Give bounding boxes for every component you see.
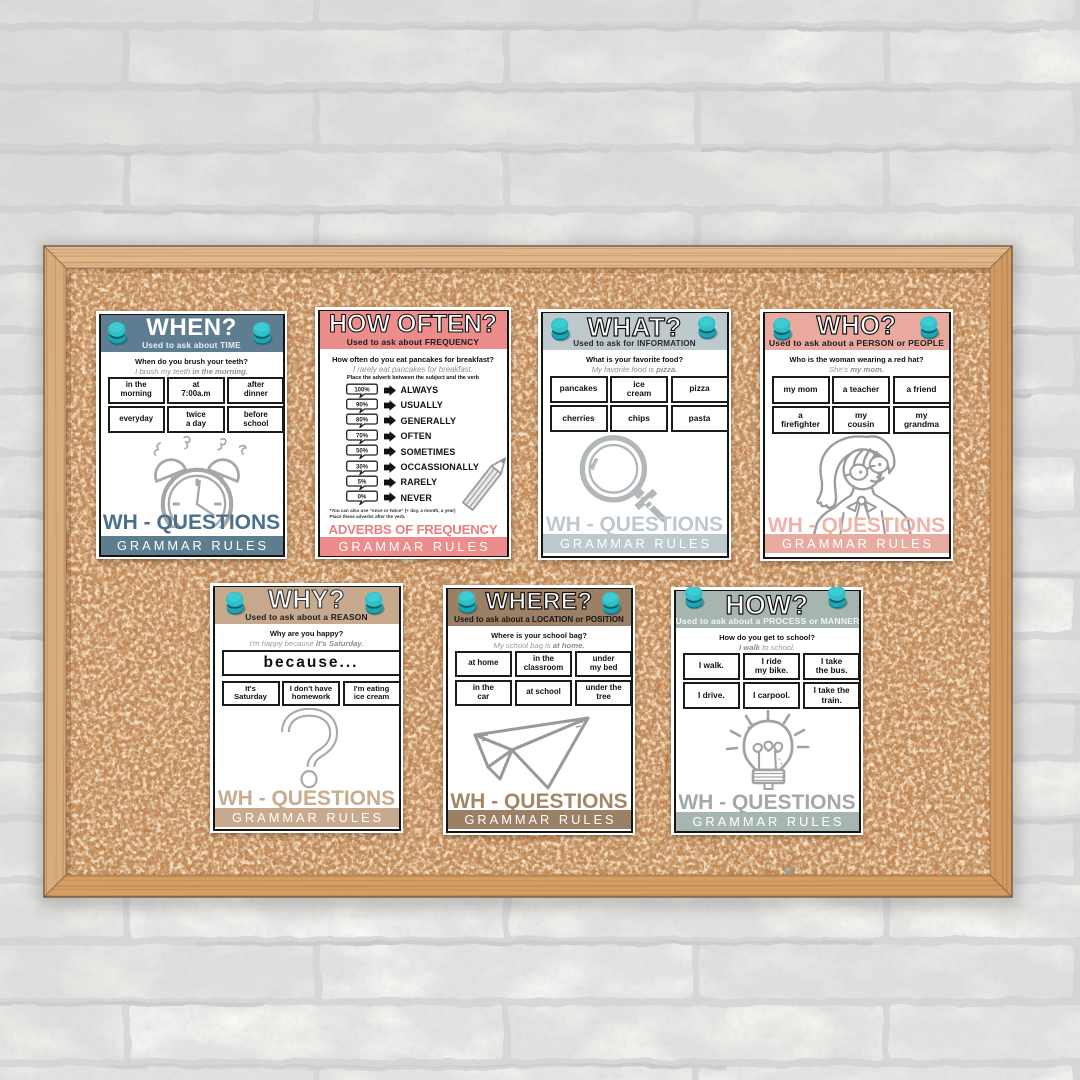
svg-text:50%: 50% xyxy=(355,449,368,455)
svg-text:100%: 100% xyxy=(354,387,370,393)
svg-text:5%: 5% xyxy=(357,480,366,486)
svg-text:70%: 70% xyxy=(355,433,368,439)
svg-text:30%: 30% xyxy=(355,464,368,470)
svg-text:90%: 90% xyxy=(355,403,368,409)
svg-text:0%: 0% xyxy=(357,495,366,501)
svg-text:80%: 80% xyxy=(355,418,368,424)
